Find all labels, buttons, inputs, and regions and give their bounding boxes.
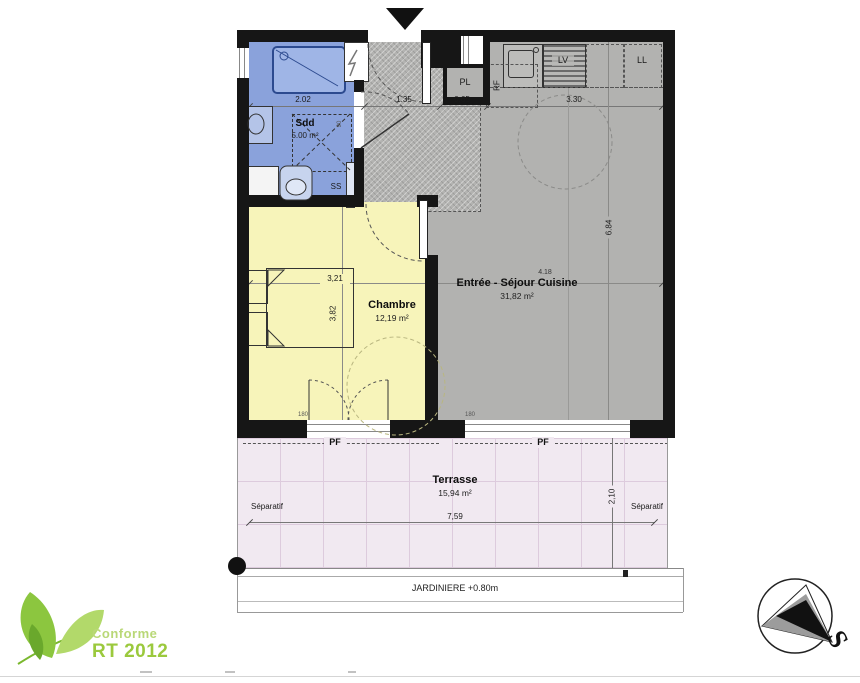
wall-bathroom-bedroom: [237, 195, 364, 207]
dim-entry-width: 1.35: [386, 95, 422, 105]
terrace-name: Terrasse: [420, 474, 490, 486]
dim-bathroom-width: 2.02: [285, 95, 321, 105]
jardiniere-label: JARDINIERE +0.80m: [340, 583, 570, 594]
shower-width-note: 90: [335, 118, 345, 130]
french-window-label: PF: [324, 437, 346, 448]
wall-bottom-1: [237, 420, 307, 438]
window-width-note: 180: [295, 411, 311, 419]
wall-top-left: [237, 30, 368, 42]
wall-bedroom-living: [425, 255, 438, 420]
living-name: Entrée - Séjour Cuisine: [447, 277, 587, 289]
bathroom-name: Sdd: [283, 118, 327, 130]
scan-smudge: [140, 671, 152, 673]
wall-bottom-2: [390, 420, 465, 438]
bathroom-window: [237, 48, 249, 78]
dim-chain-top: [249, 106, 663, 107]
dim-living-width: 4.18: [533, 268, 557, 277]
living-area: 31,82 m²: [487, 291, 547, 301]
jardiniere-line-3: [237, 601, 683, 602]
window-width-note: 180: [462, 411, 478, 419]
towel-dryer-label: SS: [328, 182, 344, 192]
bathroom-area: 5.00 m²: [283, 131, 327, 141]
survey-marker: [228, 557, 246, 575]
fridge-label: RF: [492, 75, 503, 97]
kitchen-unit-slot: [586, 44, 624, 88]
terrace-floor: [237, 438, 667, 568]
scan-line: [0, 676, 860, 677]
shower-tray: [272, 46, 346, 94]
bedroom-french-window: [307, 420, 390, 438]
living-french-window: [465, 420, 630, 438]
jardiniere-right-edge: [683, 568, 684, 612]
jardiniere-line-4: [237, 612, 683, 613]
compass-south-letter: S: [818, 620, 858, 659]
washing-machine-unit: [624, 44, 662, 88]
washing-machine-label: LL: [630, 54, 654, 66]
compass-icon: [758, 579, 832, 653]
jardiniere-tick: [623, 570, 628, 577]
wall-bathroom-upper: [354, 80, 364, 92]
electric-niche: [344, 42, 369, 82]
dim-terrace-width: 7,59: [440, 512, 470, 522]
kitchen-zone-line: [568, 88, 569, 420]
terrace-dim-line: [249, 522, 655, 523]
dishwasher-label: LV: [552, 54, 574, 66]
scan-smudge: [225, 671, 235, 673]
closet-label: PL: [447, 76, 483, 88]
separatif-right: Séparatif: [626, 502, 668, 512]
nightstand: [248, 312, 268, 346]
dim-closet-width: 0.65: [444, 95, 480, 105]
wall-bottom-3: [630, 420, 675, 438]
terrace-left-edge: [237, 438, 238, 568]
jardiniere-line-1: [237, 568, 683, 569]
dishwasher-unit: [543, 44, 586, 88]
terrace-area: 15,94 m²: [425, 488, 485, 498]
wall-bathroom-lower: [354, 148, 364, 202]
entrance-arrow-icon: [386, 8, 424, 30]
bedroom-door-leaf: [419, 200, 428, 259]
dim-kitchen-width: 3.30: [556, 95, 592, 105]
french-window-label: PF: [532, 437, 554, 448]
entry-door-leaf: [422, 42, 431, 104]
scan-smudge: [348, 671, 356, 673]
nightstand: [248, 270, 268, 304]
bedroom-area: 12,19 m²: [366, 313, 418, 323]
rt2012-logo-line2: RT 2012: [92, 641, 212, 661]
closet-window: [461, 36, 483, 64]
wall-left: [237, 30, 249, 438]
dim-bedroom-width: 3,21: [320, 274, 350, 284]
dim-bedroom-height: 3,82: [328, 303, 339, 325]
pf-dash-right: [455, 443, 668, 444]
separatif-left: Séparatif: [246, 502, 288, 512]
bedroom-name: Chambre: [360, 299, 424, 311]
dim-living-height: 6.84: [604, 217, 615, 239]
rt2012-logo-line1: Conforme: [92, 626, 192, 640]
floor-plan: Sdd 5.00 m² 2.02 1.35 0.65 3.30 PL SS 90…: [0, 0, 860, 683]
wall-right: [663, 30, 675, 438]
jardiniere-line-2: [237, 576, 683, 577]
dim-terrace-height: 2,10: [607, 486, 618, 508]
